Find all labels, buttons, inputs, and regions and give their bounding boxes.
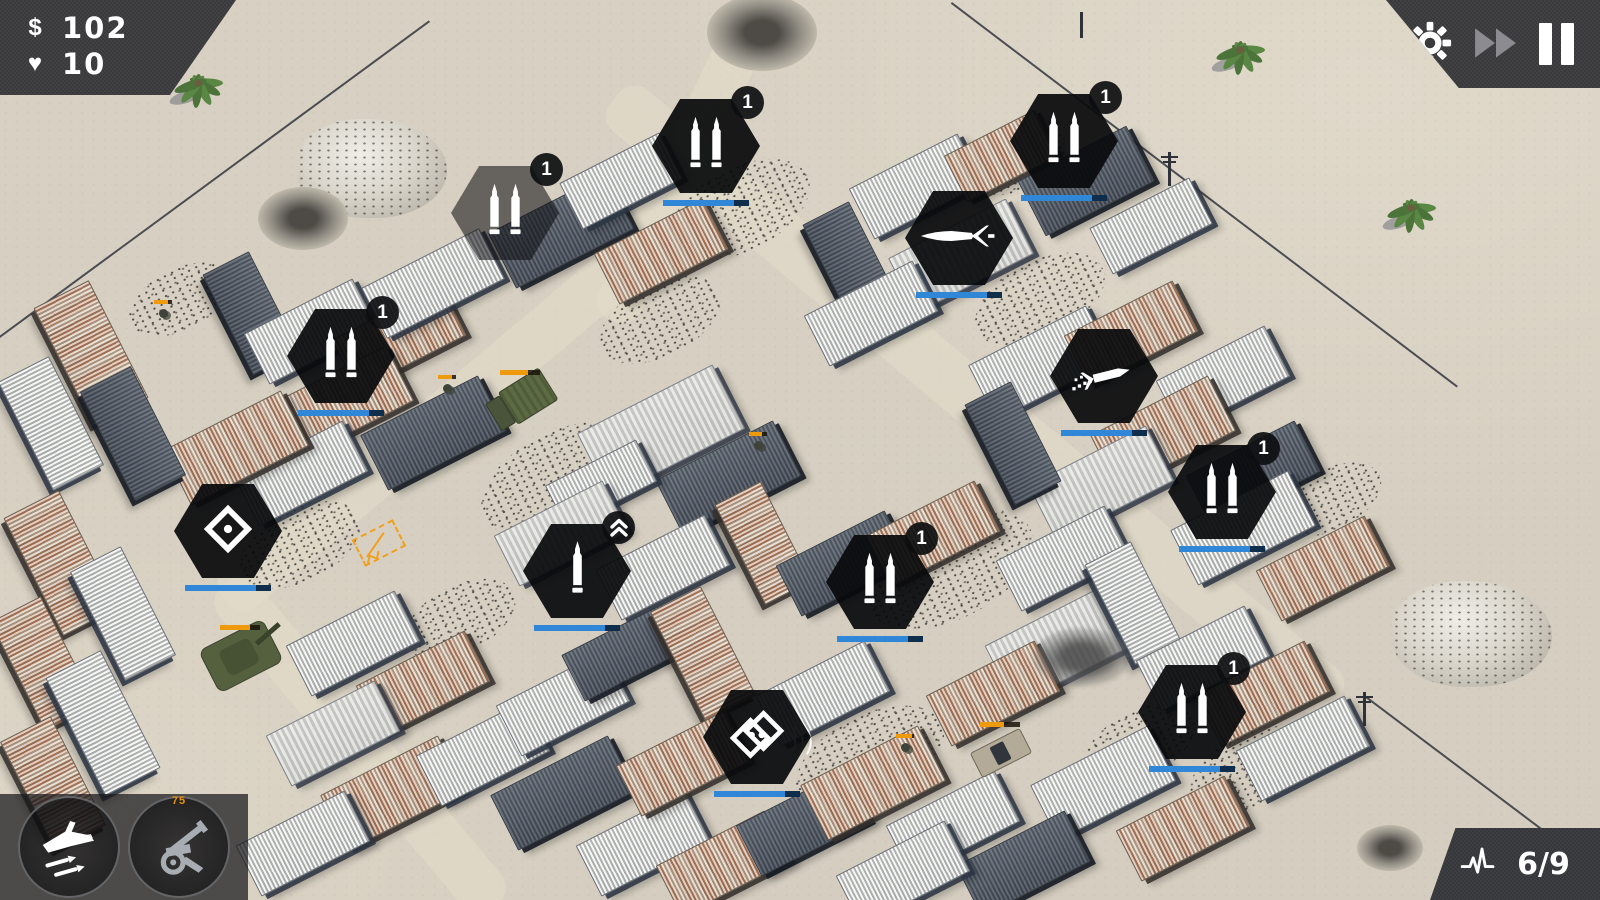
tower-level-badge: 1 (1089, 81, 1122, 114)
tower-level-badge: 1 (1247, 432, 1280, 465)
smoke-cloud (1034, 628, 1130, 686)
tower-missile-trail[interactable] (1050, 329, 1158, 423)
enemy-health-bar (500, 370, 540, 375)
tower-reload-bar (298, 410, 384, 416)
enemy-health-bar (220, 625, 260, 630)
crater (258, 187, 348, 250)
fast-forward-button[interactable] (1473, 26, 1519, 63)
rubble-pile (1392, 581, 1552, 687)
artillery-cost: 75 (172, 795, 186, 807)
double-diamond-icon (724, 704, 790, 771)
tower-level-badge: 1 (366, 296, 399, 329)
enemy-health-bar (749, 432, 767, 436)
tower-reload-bar (1061, 430, 1147, 436)
rocket-icon (919, 221, 999, 256)
missile-trail-icon (1071, 350, 1137, 403)
money-icon: $ (24, 14, 48, 42)
tower-reload-bar (1149, 766, 1235, 772)
enemy-soldier (163, 313, 168, 318)
tower-hex (1050, 329, 1158, 423)
artillery-cannon-icon (142, 808, 216, 887)
tower-double-bullet[interactable]: 1 (826, 535, 934, 629)
tower-reload-bar (663, 200, 749, 206)
tower-level-badge: 1 (731, 86, 764, 119)
tower-reload-bar (534, 625, 620, 631)
pause-button[interactable] (1539, 23, 1574, 65)
single-bullet-icon (570, 539, 585, 604)
tower-double-bullet[interactable]: 1 (652, 99, 760, 193)
tower-double-diamond[interactable] (703, 690, 811, 784)
tower-double-bullet[interactable]: 1 (287, 309, 395, 403)
enemy-health-bar (438, 375, 456, 379)
wave-counter: 6/9 (1517, 847, 1570, 882)
double-bullet-icon (1171, 681, 1213, 744)
enemy-health-bar (980, 722, 1020, 727)
diamond-icon (197, 498, 259, 565)
enemy-tank (240, 655, 277, 680)
pause-icon (1539, 23, 1574, 65)
artillery-ability-button[interactable]: 75 (128, 796, 230, 898)
tower-level-badge: 1 (905, 522, 938, 555)
tower-hex (703, 690, 811, 784)
tower-reload-bar (714, 791, 800, 797)
double-bullet-icon (1201, 461, 1243, 524)
tower-reload-bar (837, 636, 923, 642)
enemy-pickup (1000, 752, 1029, 767)
tower-hex (174, 484, 282, 578)
double-bullet-icon (1043, 110, 1085, 173)
double-bullet-icon (320, 325, 362, 388)
fast-forward-icon (1473, 26, 1519, 63)
tower-level-badge: 1 (530, 153, 563, 186)
crater (707, 0, 817, 71)
abilities-panel: 75 (0, 794, 248, 900)
enemy-soldier (905, 747, 910, 752)
enemy-health-bar (154, 300, 172, 304)
tower-reload-bar (185, 585, 271, 591)
tower-reload-bar (1021, 195, 1107, 201)
enemy-health-bar (896, 734, 914, 738)
double-bullet-icon (685, 115, 727, 178)
tower-double-bullet[interactable]: 1 (1010, 94, 1118, 188)
money-row: $ 102 (24, 10, 236, 46)
tower-double-bullet[interactable]: 1 (451, 166, 559, 260)
double-bullet-icon (484, 182, 526, 245)
money-value: 102 (62, 11, 129, 45)
wave-panel: 6/9 (1430, 828, 1600, 900)
crater (1357, 825, 1423, 871)
utility-pole (1363, 692, 1366, 726)
tower-single-bullet[interactable] (523, 524, 631, 618)
double-bullet-icon (859, 551, 901, 614)
tower-hex (905, 191, 1013, 285)
tower-diamond[interactable] (174, 484, 282, 578)
tower-double-bullet[interactable]: 1 (1138, 665, 1246, 759)
game-viewport: 1111111 $ 102 ♥ 10 (0, 0, 1600, 900)
airstrike-ability-button[interactable] (18, 796, 120, 898)
lives-value: 10 (62, 47, 106, 81)
upgrade-available-badge (602, 511, 635, 544)
airstrike-plane-icon (34, 810, 104, 885)
tower-reload-bar (916, 292, 1002, 298)
palm-tree (1371, 186, 1445, 245)
palm-tree (1200, 28, 1274, 87)
enemy-soldier (758, 445, 763, 450)
tower-double-bullet[interactable]: 1 (1168, 445, 1276, 539)
tower-reload-bar (1179, 546, 1265, 552)
enemy-truck (520, 400, 552, 418)
tower-rocket[interactable] (905, 191, 1013, 285)
enemy-soldier (447, 388, 452, 393)
pole (1080, 12, 1083, 38)
lives-heart-icon: ♥ (24, 50, 48, 78)
tower-level-badge: 1 (1217, 652, 1250, 685)
wave-pulse-icon (1460, 843, 1504, 885)
utility-pole (1168, 152, 1171, 186)
